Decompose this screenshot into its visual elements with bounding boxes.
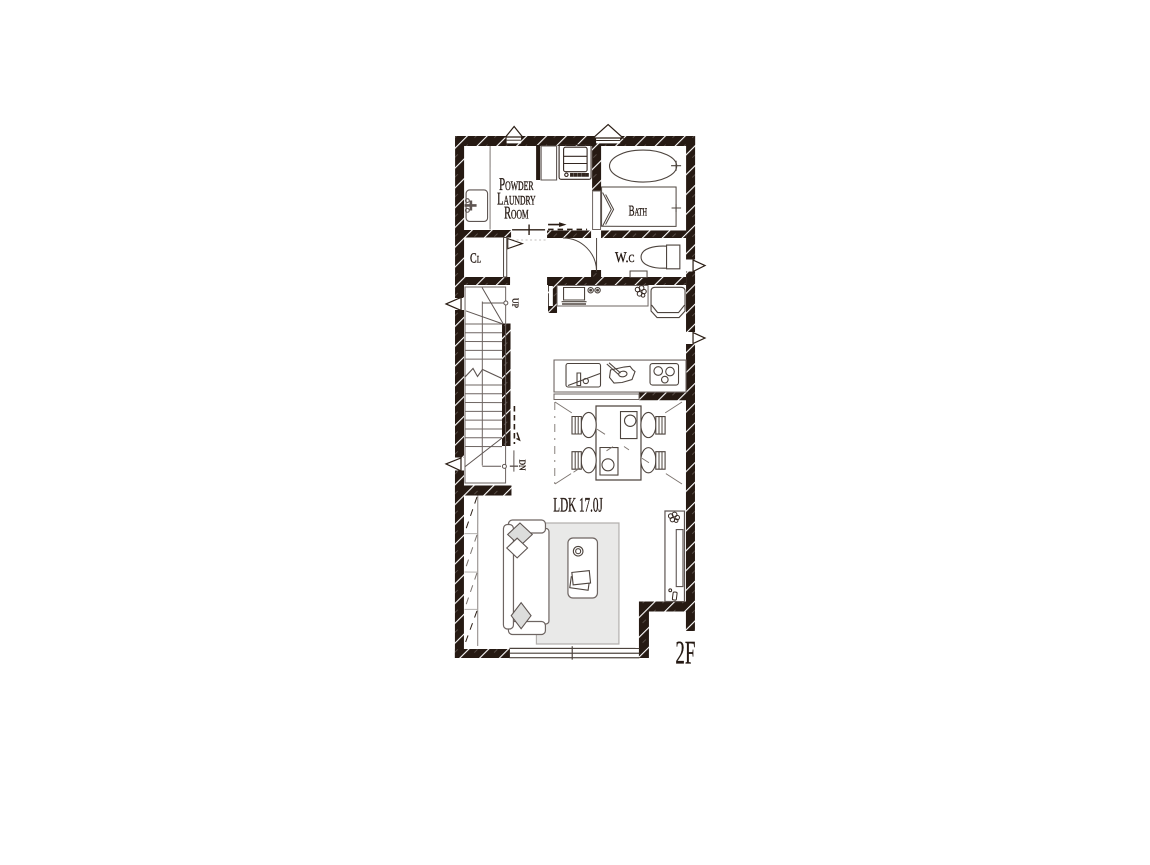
svg-text:DN: DN (517, 459, 527, 470)
svg-text:2F: 2F (675, 636, 695, 672)
svg-text:Room: Room (504, 202, 529, 222)
svg-text:Cl: Cl (470, 251, 481, 266)
svg-text:LDK 17.0J: LDK 17.0J (553, 494, 603, 516)
svg-text:UP: UP (511, 298, 521, 308)
svg-text:W.c: W.c (615, 250, 635, 266)
svg-text:Bath: Bath (629, 204, 648, 220)
